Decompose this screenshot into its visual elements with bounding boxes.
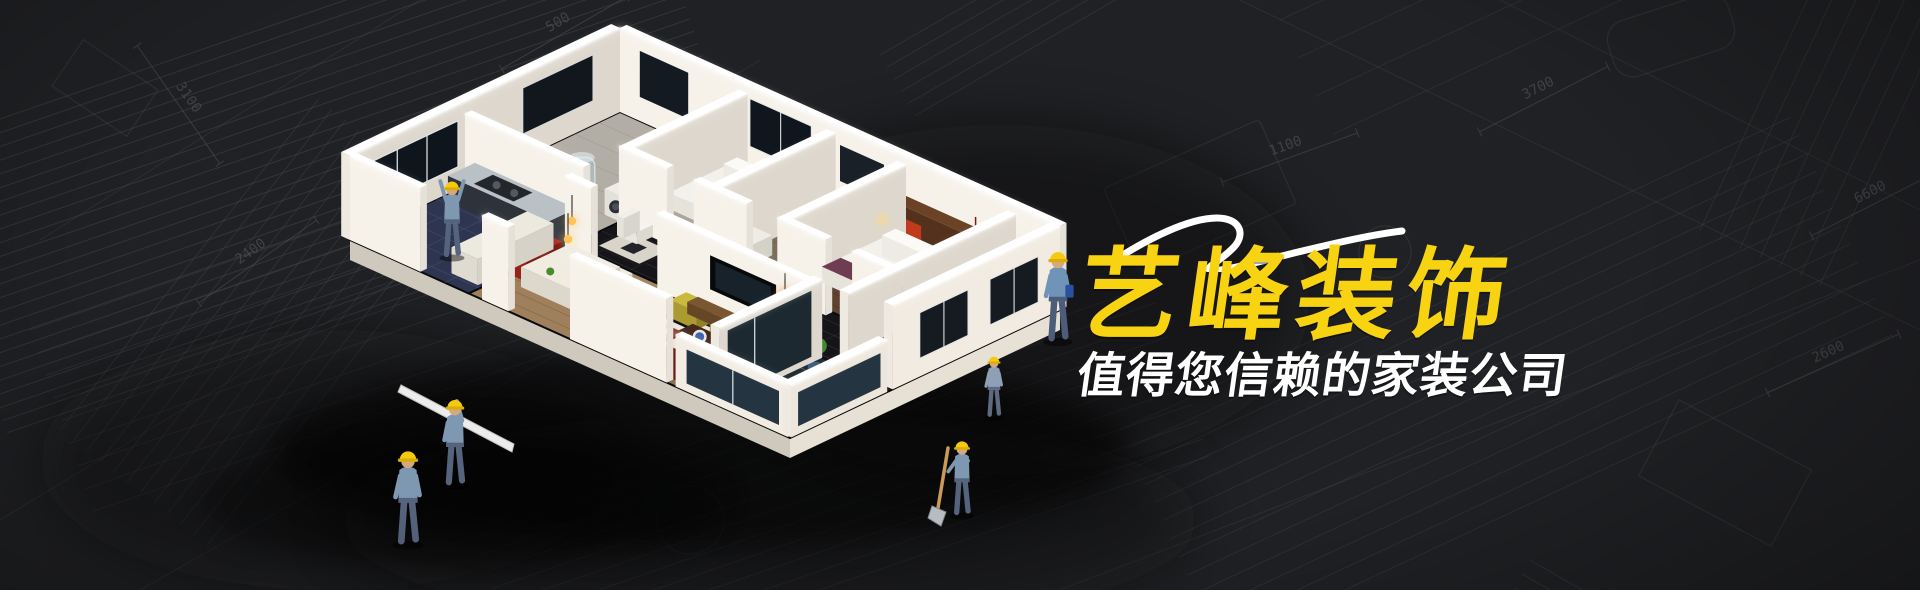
brand-block: 艺峰装饰 值得您信赖的家装公司 (1072, 130, 1692, 430)
apartment-cutaway (200, 24, 1130, 570)
hero-banner: 370066002600240031005001100 艺峰装饰 值得您信赖的家… (0, 0, 1920, 590)
banner-title: 艺峰装饰 (1072, 246, 1522, 346)
banner-subtitle: 值得您信赖的家装公司 (1074, 352, 1571, 400)
